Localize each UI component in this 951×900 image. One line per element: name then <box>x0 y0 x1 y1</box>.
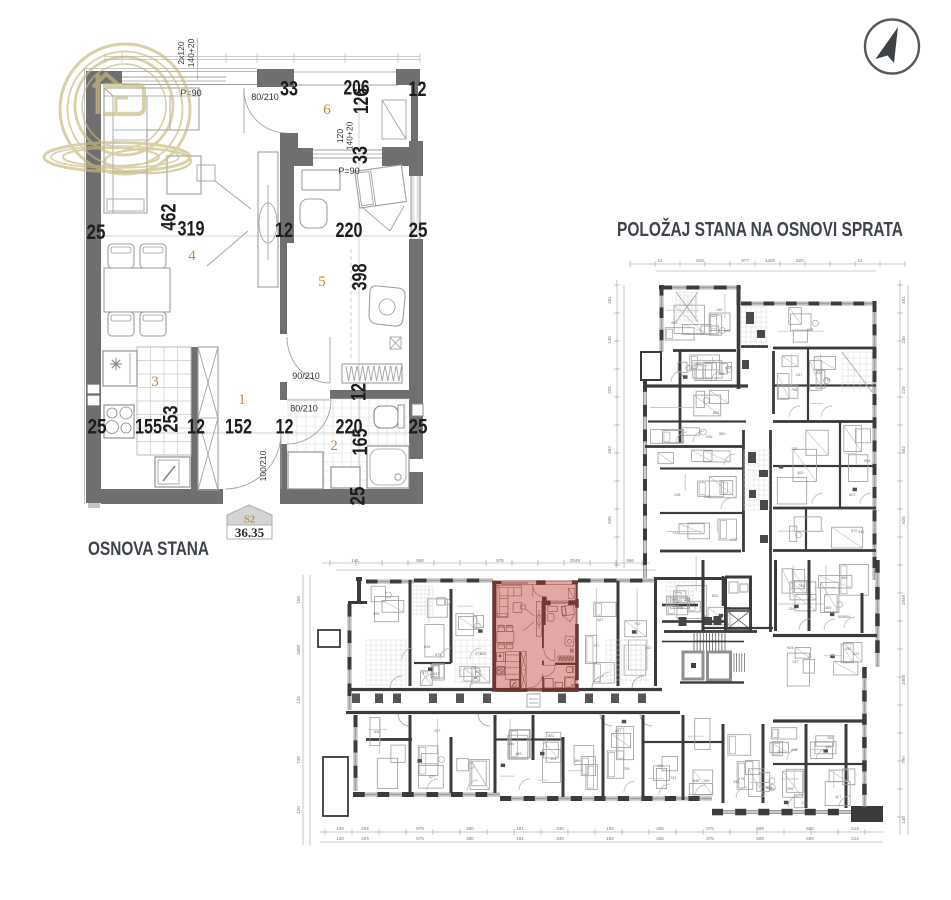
svg-text:924: 924 <box>787 646 793 650</box>
svg-text:336: 336 <box>656 826 664 831</box>
svg-text:232: 232 <box>684 598 690 602</box>
svg-text:OSNOVA STANA: OSNOVA STANA <box>88 539 209 560</box>
svg-text:904: 904 <box>844 615 850 619</box>
svg-text:135: 135 <box>801 801 807 805</box>
svg-text:447: 447 <box>433 672 439 676</box>
svg-text:802: 802 <box>712 594 718 598</box>
svg-text:120: 120 <box>336 826 344 831</box>
svg-text:462: 462 <box>901 446 906 454</box>
svg-text:217: 217 <box>615 729 621 733</box>
svg-text:P=90: P=90 <box>338 166 359 176</box>
svg-text:80/210: 80/210 <box>251 92 279 102</box>
svg-text:450: 450 <box>841 576 847 580</box>
svg-text:181: 181 <box>516 836 524 841</box>
svg-text:371: 371 <box>422 671 428 675</box>
svg-text:375: 375 <box>706 826 714 831</box>
svg-text:162: 162 <box>827 736 833 740</box>
svg-text:380: 380 <box>466 836 474 841</box>
svg-text:848: 848 <box>693 779 699 783</box>
svg-text:729: 729 <box>623 767 629 771</box>
svg-text:550: 550 <box>719 432 725 436</box>
svg-text:126: 126 <box>350 88 373 114</box>
svg-text:818: 818 <box>696 258 704 263</box>
svg-text:621: 621 <box>849 493 855 497</box>
svg-text:977: 977 <box>741 258 749 263</box>
svg-text:194: 194 <box>606 826 614 831</box>
svg-text:100/210: 100/210 <box>258 450 268 481</box>
svg-text:12: 12 <box>275 219 293 242</box>
svg-text:576: 576 <box>496 558 504 563</box>
svg-text:336: 336 <box>656 836 664 841</box>
svg-text:204: 204 <box>777 750 783 754</box>
svg-text:734: 734 <box>670 776 676 780</box>
svg-text:907: 907 <box>475 670 481 674</box>
svg-text:427: 427 <box>429 775 435 779</box>
svg-text:715: 715 <box>471 676 477 680</box>
svg-text:130: 130 <box>791 447 797 451</box>
svg-text:140+20: 140+20 <box>345 121 355 150</box>
svg-text:236: 236 <box>706 435 712 439</box>
svg-text:469: 469 <box>574 759 580 763</box>
svg-text:388: 388 <box>480 652 486 656</box>
svg-text:797: 797 <box>593 644 599 648</box>
svg-text:462: 462 <box>607 446 612 454</box>
svg-text:141: 141 <box>351 558 359 563</box>
svg-text:214: 214 <box>851 826 859 831</box>
svg-text:204: 204 <box>361 826 369 831</box>
svg-text:470: 470 <box>730 538 736 542</box>
svg-text:461: 461 <box>607 296 612 304</box>
svg-text:25: 25 <box>88 416 107 439</box>
svg-text:2: 2 <box>330 438 338 454</box>
svg-text:346: 346 <box>556 836 564 841</box>
svg-text:247: 247 <box>796 373 802 377</box>
svg-text:80/210: 80/210 <box>290 404 318 414</box>
svg-text:1: 1 <box>238 392 246 408</box>
svg-text:181: 181 <box>516 826 524 831</box>
svg-text:12: 12 <box>409 78 427 101</box>
svg-text:25: 25 <box>347 486 370 505</box>
svg-text:566: 566 <box>626 558 634 563</box>
svg-text:25: 25 <box>87 221 106 244</box>
svg-text:225: 225 <box>901 386 906 394</box>
svg-text:214: 214 <box>851 836 859 841</box>
svg-text:798: 798 <box>791 388 797 392</box>
svg-text:336: 336 <box>858 530 864 534</box>
svg-text:242: 242 <box>679 374 685 378</box>
svg-text:1400: 1400 <box>765 258 776 263</box>
svg-text:346: 346 <box>556 826 564 831</box>
svg-text:199: 199 <box>703 779 709 783</box>
svg-text:260: 260 <box>508 742 514 746</box>
svg-text:485: 485 <box>825 745 831 749</box>
svg-text:461: 461 <box>901 296 906 304</box>
svg-text:3: 3 <box>151 374 159 390</box>
svg-text:572: 572 <box>851 529 857 533</box>
svg-text:791: 791 <box>798 584 804 588</box>
svg-text:696: 696 <box>424 645 430 649</box>
svg-text:S2: S2 <box>244 514 256 526</box>
svg-text:140: 140 <box>901 816 906 824</box>
svg-text:319: 319 <box>178 218 205 241</box>
svg-text:25: 25 <box>409 416 428 439</box>
svg-text:1003: 1003 <box>296 644 301 655</box>
svg-text:120: 120 <box>335 129 345 143</box>
svg-text:554: 554 <box>864 459 870 463</box>
svg-text:204: 204 <box>361 836 369 841</box>
svg-text:268: 268 <box>704 495 710 499</box>
svg-text:152: 152 <box>845 647 851 651</box>
svg-text:12: 12 <box>348 383 371 401</box>
svg-text:822: 822 <box>548 734 554 738</box>
svg-text:POLOŽAJ STANA NA OSNOVI SPRATA: POLOŽAJ STANA NA OSNOVI SPRATA <box>617 217 903 241</box>
svg-text:322: 322 <box>853 652 859 656</box>
svg-text:36.35: 36.35 <box>235 525 265 540</box>
svg-text:2049: 2049 <box>570 558 581 563</box>
svg-text:187: 187 <box>597 618 603 622</box>
svg-text:100: 100 <box>657 764 663 768</box>
svg-text:579: 579 <box>416 826 424 831</box>
svg-text:295: 295 <box>787 787 793 791</box>
svg-text:375: 375 <box>706 836 714 841</box>
svg-text:90/210: 90/210 <box>292 371 320 381</box>
svg-text:405: 405 <box>825 606 831 610</box>
svg-text:253: 253 <box>160 406 183 433</box>
svg-text:626: 626 <box>901 516 906 524</box>
svg-text:427: 427 <box>835 795 841 799</box>
svg-text:155: 155 <box>135 416 162 439</box>
svg-text:498: 498 <box>677 606 683 610</box>
svg-text:21: 21 <box>657 258 663 263</box>
svg-text:609: 609 <box>756 826 764 831</box>
svg-text:33: 33 <box>280 78 298 101</box>
svg-text:448: 448 <box>791 748 797 752</box>
svg-text:234: 234 <box>788 607 794 611</box>
svg-text:25: 25 <box>409 219 428 242</box>
svg-text:609: 609 <box>756 836 764 841</box>
svg-text:398: 398 <box>349 263 372 290</box>
svg-text:738: 738 <box>296 756 301 764</box>
svg-text:1003: 1003 <box>901 674 906 685</box>
svg-text:380: 380 <box>466 826 474 831</box>
svg-text:12: 12 <box>276 416 294 439</box>
svg-text:519: 519 <box>725 366 731 370</box>
svg-text:626: 626 <box>607 516 612 524</box>
svg-text:225: 225 <box>607 386 612 394</box>
svg-text:5: 5 <box>318 274 326 290</box>
svg-text:165: 165 <box>349 428 372 455</box>
svg-text:136: 136 <box>716 308 722 312</box>
svg-text:300: 300 <box>797 471 803 475</box>
svg-text:126: 126 <box>296 696 301 704</box>
svg-text:120: 120 <box>296 806 301 814</box>
svg-text:4: 4 <box>188 248 196 264</box>
svg-text:140+20: 140+20 <box>186 38 196 67</box>
svg-text:197: 197 <box>792 660 798 664</box>
svg-text:220: 220 <box>336 219 363 242</box>
svg-text:152: 152 <box>225 416 252 439</box>
svg-text:128: 128 <box>674 493 680 497</box>
svg-text:150: 150 <box>296 596 301 604</box>
svg-text:813: 813 <box>766 786 772 790</box>
svg-text:790: 790 <box>901 756 906 764</box>
svg-text:174: 174 <box>738 777 744 781</box>
svg-text:2949: 2949 <box>901 594 906 605</box>
svg-text:194: 194 <box>606 836 614 841</box>
svg-text:864: 864 <box>713 411 719 415</box>
svg-text:12: 12 <box>187 416 205 439</box>
svg-text:6: 6 <box>323 102 331 118</box>
svg-text:21: 21 <box>857 258 863 263</box>
svg-text:140: 140 <box>901 336 906 344</box>
svg-text:679: 679 <box>435 653 441 657</box>
svg-text:2x120: 2x120 <box>176 41 186 64</box>
svg-text:933: 933 <box>816 371 822 375</box>
svg-text:600: 600 <box>806 836 814 841</box>
svg-text:469: 469 <box>515 752 521 756</box>
svg-text:609: 609 <box>373 612 379 616</box>
svg-text:140: 140 <box>607 336 612 344</box>
svg-text:120: 120 <box>336 836 344 841</box>
svg-text:556: 556 <box>416 558 424 563</box>
svg-text:P=90: P=90 <box>180 88 201 98</box>
svg-text:579: 579 <box>416 836 424 841</box>
svg-text:490: 490 <box>671 321 677 325</box>
svg-text:776: 776 <box>824 378 830 382</box>
svg-text:964: 964 <box>718 372 724 376</box>
svg-text:600: 600 <box>806 826 814 831</box>
svg-text:620: 620 <box>796 258 804 263</box>
svg-text:103: 103 <box>550 757 556 761</box>
